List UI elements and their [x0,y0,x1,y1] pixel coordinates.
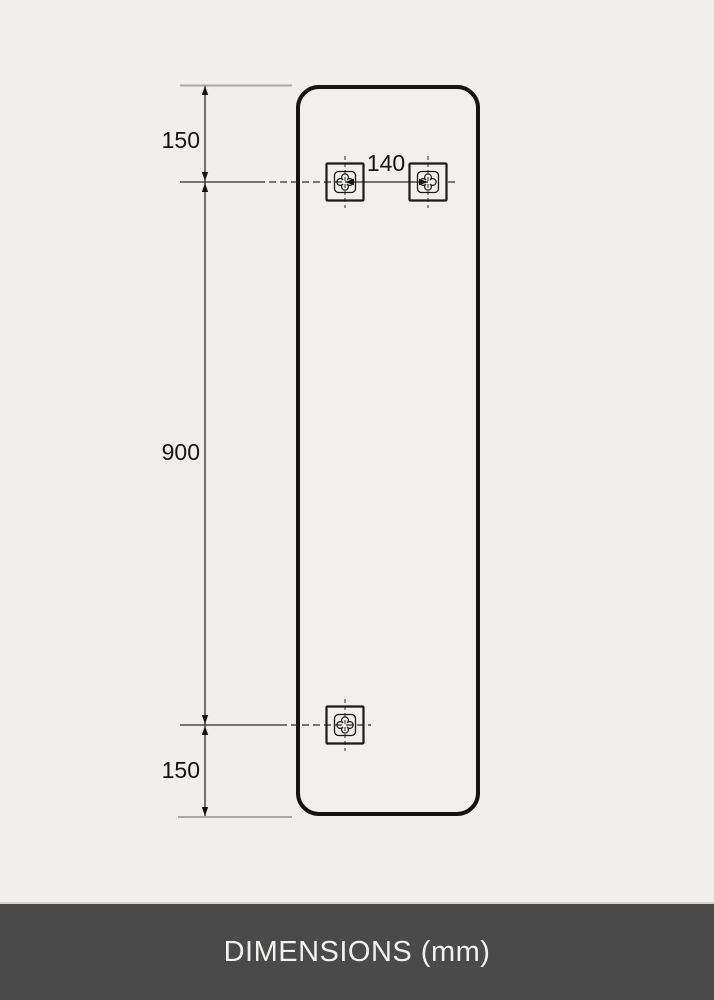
arrow-up-from-bottom-mount [202,726,208,735]
dim-label-bottom-150: 150 [162,757,200,783]
dimension-diagram: 150 900 150 140 [0,0,714,902]
product-outline [298,87,478,814]
page: 150 900 150 140 DIMENSIONS (mm) [0,0,714,1000]
dim-label-140: 140 [367,150,405,176]
arrow-up-from-top-mount [202,183,208,192]
vertical-dimension-line [202,86,208,816]
footer-title: DIMENSIONS (mm) [224,936,491,969]
footer-bar: DIMENSIONS (mm) [0,902,714,1000]
dim-label-top-150: 150 [162,127,200,153]
diagram-stage: 150 900 150 140 [0,0,714,902]
dim-label-900: 900 [162,439,200,465]
arrow-up-top [202,86,208,95]
arrow-down-to-top-mount [202,172,208,181]
arrow-down-to-bottom-mount [202,715,208,724]
arrow-down-bottom [202,807,208,816]
